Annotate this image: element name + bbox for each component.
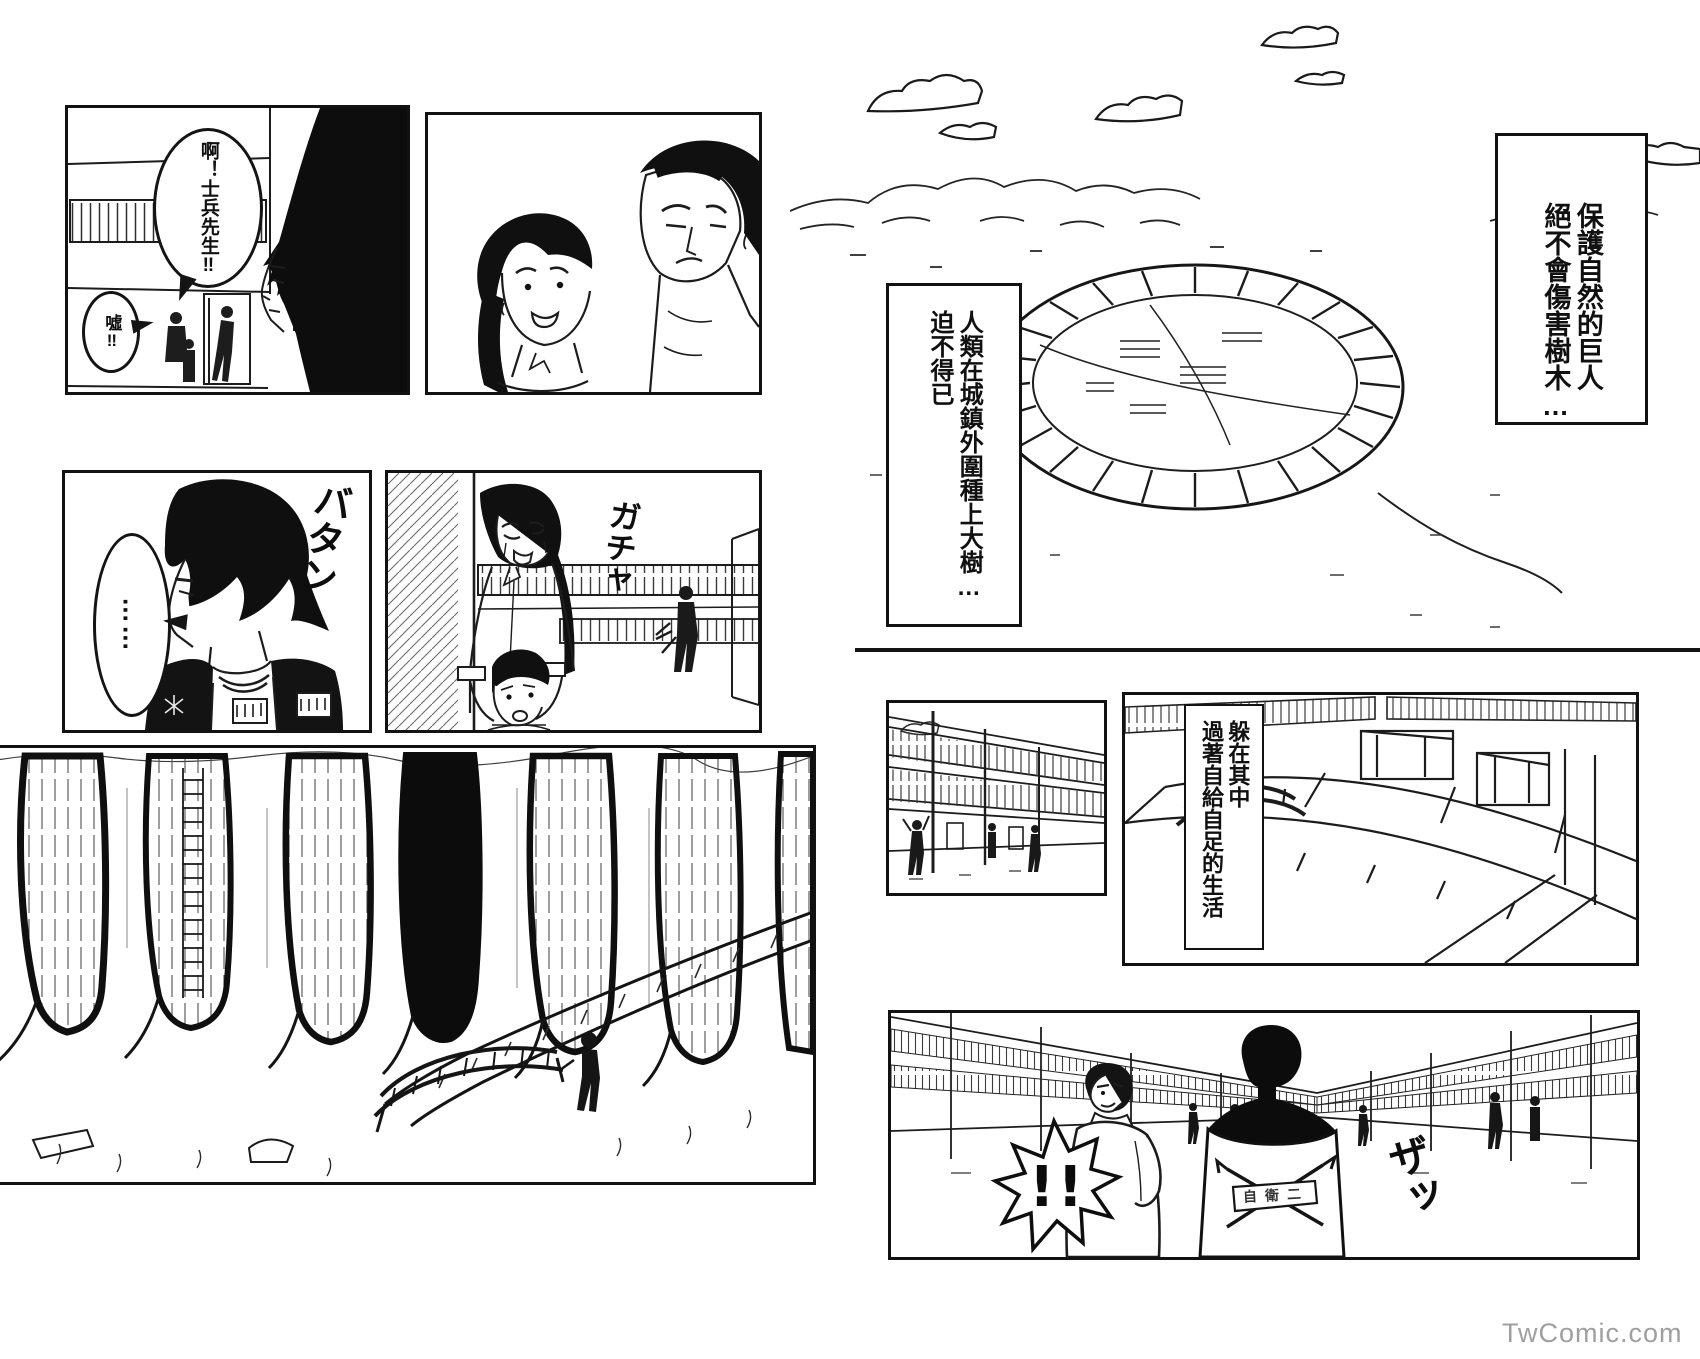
jacket-emblem-text: 自衛二: [1243, 1183, 1310, 1206]
narration-box-giant: 保護自然的巨人 絕不會傷害樹木…: [1495, 133, 1648, 425]
doorway-art: [388, 473, 759, 730]
speech-bubble-hush-text: 噓‼: [102, 314, 121, 350]
panel-street-call: 啊！士兵先生‼ 噓‼: [65, 105, 410, 395]
speech-bubble-hush: 噓‼: [82, 291, 140, 373]
panel-parents: [425, 112, 762, 395]
narration-box-trees: 人類在城鎮外圍種上大樹… 迫不得已: [886, 283, 1022, 627]
scene-divider: [855, 648, 1700, 652]
panel-doorway: ガチャ: [385, 470, 762, 733]
speech-bubble-shout: 啊！士兵先生‼: [153, 128, 263, 288]
housing-art: [889, 703, 1104, 893]
speech-bubble-dots-tail: [162, 612, 188, 630]
street-notice-art: [891, 1013, 1637, 1257]
panel-silence: …… バタン: [62, 470, 372, 733]
speech-bubble-dots: ……: [93, 533, 171, 717]
parents-art: [428, 115, 759, 392]
panel-housing: [886, 700, 1107, 896]
speech-bubble-dots-text: ……: [117, 597, 148, 653]
manga-page: 啊！士兵先生‼ 噓‼: [0, 0, 1700, 1359]
narration-box-hide: 躲在其中 過著自給自足的生活: [1184, 704, 1264, 950]
narration-giant-text: 保護自然的巨人 絕不會傷害樹木…: [1539, 202, 1604, 422]
watermark: TwComic.com: [1502, 1318, 1683, 1349]
narration-hide-text: 躲在其中 過著自給自足的生活: [1198, 720, 1251, 948]
speech-bubble-shout-text: 啊！士兵先生‼: [197, 141, 219, 276]
burst-exclaim-text: !!: [1029, 1155, 1086, 1220]
panel-forest: [0, 745, 816, 1185]
panel-street-notice: !! 自衛二 ザッ: [888, 1010, 1640, 1260]
forest-art: [0, 748, 813, 1182]
narration-trees-text: 人類在城鎮外圍種上大樹… 迫不得已: [925, 310, 984, 624]
